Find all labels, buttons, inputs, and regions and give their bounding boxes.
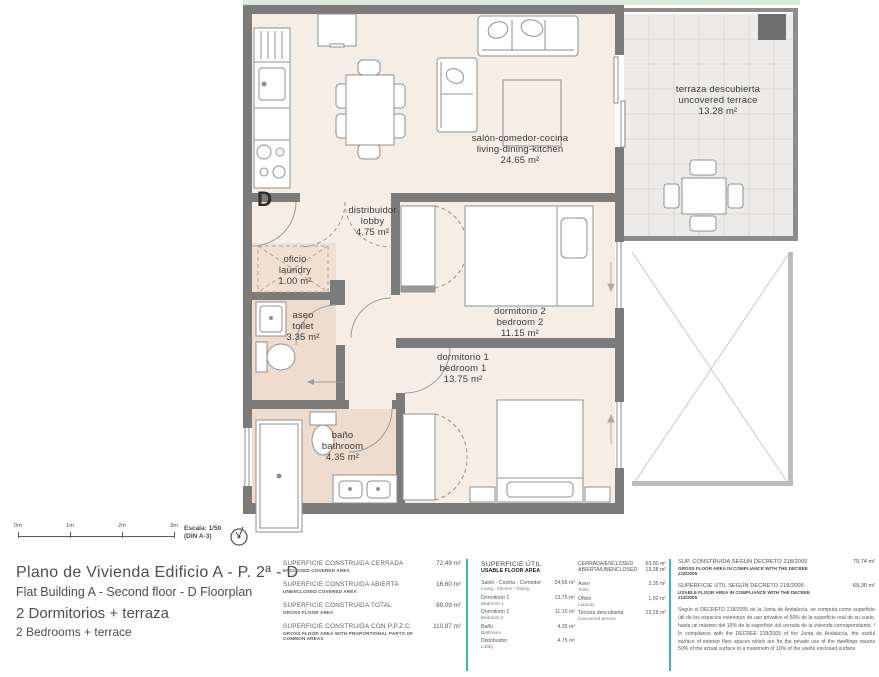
room-name-en: lobby xyxy=(330,216,415,227)
usable-title-es: SUPERFICIE ÚTIL xyxy=(481,561,575,568)
room-name-es: aseo xyxy=(268,310,338,321)
table-row: SUPERFICIE CONSTRUIDA TOTAL GROSS FLOOR … xyxy=(283,602,461,615)
room-name-es: baño xyxy=(300,430,385,441)
room-area: 13.75 m² xyxy=(405,374,521,385)
room-name-es: distribuidor xyxy=(330,205,415,216)
adjacent-void xyxy=(632,252,793,486)
bed2-icon xyxy=(465,206,593,306)
room-label-bathroom: baño bathroom 4.35 m² xyxy=(300,430,385,464)
area-value: 16,60 m² xyxy=(436,581,461,594)
sofa-icon xyxy=(478,16,578,56)
terrace-door-window xyxy=(614,55,625,147)
nightstand-left-icon xyxy=(470,487,495,502)
room-name-es: terraza descubierta xyxy=(648,84,788,95)
usable-areas-table: SUPERFICIE ÚTIL USABLE FLOOR AREA Salón … xyxy=(481,561,575,653)
room-name-en: bedroom 2 xyxy=(460,317,580,328)
table-row: SUPERFICIE CONSTRUIDA CERRADA ENCLOSED C… xyxy=(283,560,461,573)
usable-areas-summary: CERRADA/ENCLOSED 63,00 m² ABIERTA/UNENCL… xyxy=(578,561,666,625)
scale-bar-line xyxy=(18,536,174,537)
room-name-en: bedroom 1 xyxy=(405,363,521,374)
room-label-laundry: oficio laundry 1.00 m² xyxy=(262,254,328,288)
table-row: Aseo Toilet 3,35 m² xyxy=(578,581,666,592)
table-row: SUPERFICIE CONSTRUIDA ABIERTA UNENCLOSED… xyxy=(283,581,461,594)
room-name-en: living-dining-kitchen xyxy=(440,144,600,155)
room-area: 4.35 m² xyxy=(300,452,385,463)
bedroom1-window xyxy=(615,402,624,468)
room-area: 24.65 m² xyxy=(440,155,600,166)
scale-tick-label: 2m xyxy=(112,523,132,529)
decree-table: SUP. CONSTRUIDA SEGÚN DECRETO 218/2005 G… xyxy=(678,559,875,654)
table-row: Distribuidor Lobby 4,75 m² xyxy=(481,638,575,649)
room-area: 1.00 m² xyxy=(262,276,328,287)
table-row: Baño Bathroom 4,35 m² xyxy=(481,624,575,635)
north-symbol-icon xyxy=(228,523,250,554)
bed1-icon xyxy=(497,400,583,502)
toilet2-icon xyxy=(256,342,295,372)
bedroom1-furniture xyxy=(403,400,610,502)
area-value: 72,49 m² xyxy=(436,560,461,573)
table-row: SUP. CONSTRUIDA SEGÚN DECRETO 218/2005 G… xyxy=(678,559,875,576)
fridge-icon xyxy=(254,28,290,62)
scale-tick-label: 1m xyxy=(60,523,80,529)
kitchen-counter-icon xyxy=(254,108,290,140)
scale-text: Escala: 1/50 (DIN A-3) xyxy=(184,525,221,541)
table-row: Oficio Laundry 1,00 m² xyxy=(578,596,666,607)
room-name-es: salón-comedor-cocina xyxy=(440,133,600,144)
table-row: SUPERFICIE ÚTIL SEGÚN DECRETO 218/2005 U… xyxy=(678,583,875,600)
table-row: Salón - Cocina - Comedor Living - Kitche… xyxy=(481,580,575,591)
room-label-toilet: aseo toilet 3.35 m² xyxy=(268,310,338,344)
floorplan-sheet: D salón-comedor-cocina living-dining-kit… xyxy=(0,0,879,677)
table-row: SUPERFICIE CONSTRUIDA CON P.P.Z.C. GROSS… xyxy=(283,623,461,641)
plan-subtitle-es: 2 Dormitorios + terraza xyxy=(16,605,298,622)
kitchen-cabinet-icon xyxy=(318,14,356,47)
room-label-bedroom1: dormitorio 1 bedroom 1 13.75 m² xyxy=(405,352,521,386)
bedroom2-window xyxy=(615,242,624,308)
table-row: Dormitorio 2 Bedroom 2 11,15 m² xyxy=(481,609,575,620)
unit-letter: D xyxy=(257,188,272,212)
room-name-en: laundry xyxy=(262,265,328,276)
shower-icon xyxy=(256,420,302,532)
terrace-pillar xyxy=(758,14,786,40)
room-name-en: toilet xyxy=(268,321,338,332)
stove-icon xyxy=(254,140,290,188)
scale-bar: 0m 1m 2m 3m Escala: 1/50 (DIN A-3) xyxy=(18,523,268,553)
room-area: 4.75 m² xyxy=(330,227,415,238)
sofa2-icon xyxy=(437,58,477,132)
usable-title-en: USABLE FLOOR AREA xyxy=(481,568,575,574)
room-label-terrace: terraza descubierta uncovered terrace 13… xyxy=(648,84,788,118)
area-value: 110,87 m² xyxy=(433,623,461,641)
room-area: 11.15 m² xyxy=(460,328,580,339)
room-label-living: salón-comedor-cocina living-dining-kitch… xyxy=(440,133,600,167)
area-value: 89,09 m² xyxy=(436,602,461,615)
bathroom-window xyxy=(243,428,252,486)
table-row: Dormitorio 1 Bedroom 1 13,75 m² xyxy=(481,595,575,606)
bedroom2-furniture xyxy=(401,206,593,306)
room-name-es: dormitorio 1 xyxy=(405,352,521,363)
room-name-es: dormitorio 2 xyxy=(460,306,580,317)
plan-subtitle-en: 2 Bedrooms + terrace xyxy=(16,625,298,639)
summary-row: ABIERTA/UNENCLOSED 13,28 m² xyxy=(578,567,666,573)
plan-title-en: Flat Building A - Second floor - D Floor… xyxy=(16,585,298,599)
table-divider xyxy=(669,559,671,671)
room-area: 13.28 m² xyxy=(648,106,788,117)
scale-tick-label: 0m xyxy=(8,523,28,529)
nightstand-right-icon xyxy=(585,487,610,502)
room-label-bedroom2: dormitorio 2 bedroom 2 11.15 m² xyxy=(460,306,580,340)
scale-sheet: (DIN A-3) xyxy=(184,533,221,541)
room-area: 3.35 m² xyxy=(268,332,338,343)
room-name-en: uncovered terrace xyxy=(648,95,788,106)
table-row: Terraza descubierta Uncovered terrace 13… xyxy=(578,610,666,621)
scale-tick-label: 3m xyxy=(164,523,184,529)
title-block: Plano de Vivienda Edificio A - P. 2ª - D… xyxy=(16,564,298,639)
built-areas-table: SUPERFICIE CONSTRUIDA CERRADA ENCLOSED C… xyxy=(283,560,461,649)
kitchen-sink-icon xyxy=(254,62,290,108)
room-name-en: bathroom xyxy=(300,441,385,452)
decree-note: Según el DECRETO 218/2005 de la Junta de… xyxy=(678,607,875,654)
plan-title-es: Plano de Vivienda Edificio A - P. 2ª - D xyxy=(16,564,298,582)
scale-ratio: Escala: 1/50 xyxy=(184,525,221,533)
double-sink-icon xyxy=(333,475,397,503)
table-divider xyxy=(466,559,468,671)
room-name-es: oficio xyxy=(262,254,328,265)
room-label-lobby: distribuidor lobby 4.75 m² xyxy=(330,205,415,239)
